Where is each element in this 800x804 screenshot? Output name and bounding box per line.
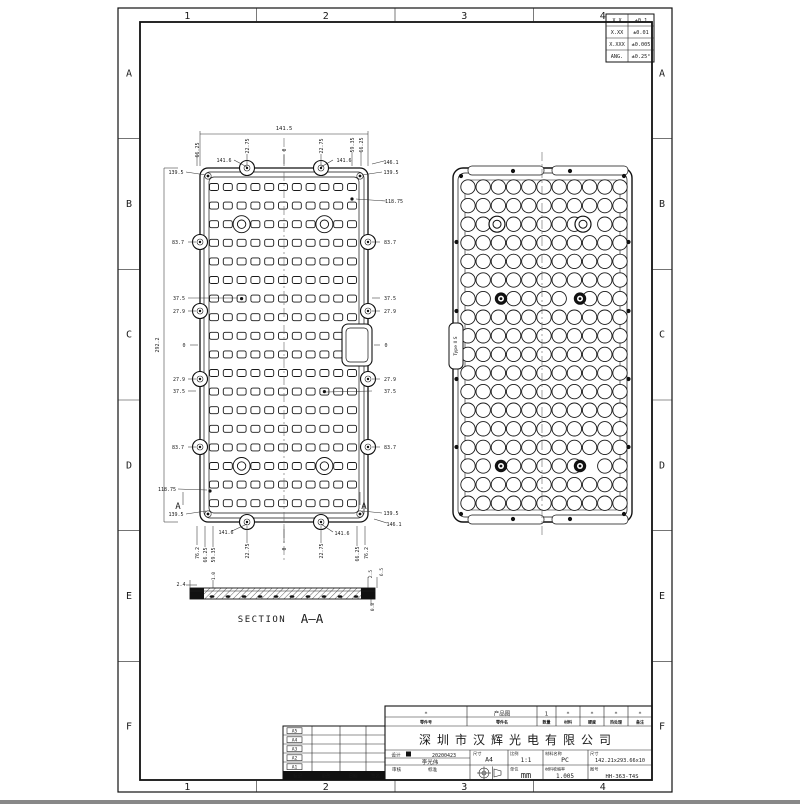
round-lens (537, 384, 551, 398)
square-lens-hole (279, 407, 288, 414)
zone-number: 1 (184, 11, 190, 22)
square-lens-hole (223, 184, 232, 191)
square-lens-hole (320, 370, 329, 377)
square-lens-hole (334, 463, 343, 470)
part-row-label: 材料 (563, 719, 572, 725)
square-lens-hole (210, 481, 219, 488)
zone-letter: B (659, 199, 665, 210)
square-lens-hole (279, 184, 288, 191)
screw-hole (493, 220, 501, 228)
dimension-label: 37.5 (173, 296, 185, 302)
square-lens-hole (251, 277, 260, 284)
round-lens (491, 422, 505, 436)
round-lens (582, 477, 596, 491)
mount-hole-dot (454, 240, 458, 244)
round-lens (506, 273, 520, 287)
square-lens-hole (292, 277, 301, 284)
round-lens (613, 459, 627, 473)
dimension-label: 0.8 (370, 603, 376, 611)
dimension-line (372, 161, 384, 164)
square-lens-hole (348, 277, 357, 284)
round-lens (506, 198, 520, 212)
square-lens-hole (223, 239, 232, 246)
square-lens-hole (265, 202, 274, 209)
round-lens (567, 440, 581, 454)
square-lens-hole (251, 388, 260, 395)
round-lens (537, 347, 551, 361)
square-lens-hole (265, 444, 274, 451)
round-lens (537, 180, 551, 194)
shrink-label: 材料收缩率 (545, 766, 565, 772)
round-lens (476, 310, 490, 324)
square-lens-hole (334, 221, 343, 228)
round-lens (476, 254, 490, 268)
square-lens-hole (210, 332, 219, 339)
mount-hole-dot (511, 517, 515, 521)
round-lens (461, 440, 475, 454)
square-lens-hole (279, 314, 288, 321)
round-lens (598, 459, 612, 473)
round-lens (598, 477, 612, 491)
tolerance-value: ±0.25° (632, 54, 651, 60)
square-lens-hole (306, 295, 315, 302)
scale-label: 比例 (510, 750, 518, 757)
dimension-label: 83.7 (384, 445, 396, 451)
square-lens-hole (223, 351, 232, 358)
dimension-label: 141.6 (334, 531, 349, 537)
part-row-label: 备注 (635, 719, 644, 725)
dimension-label: 27.9 (384, 377, 396, 383)
square-lens-hole (292, 370, 301, 377)
zone-number: 3 (461, 782, 467, 793)
design-date: 20200423 (432, 753, 456, 759)
round-lens (552, 366, 566, 380)
round-lens (552, 198, 566, 212)
mount-hole-dot (454, 377, 458, 381)
square-lens-hole (237, 370, 246, 377)
side-tab-inner (346, 328, 368, 362)
revision-header: 日期 (349, 774, 358, 780)
dimension-label: 118.75 (385, 199, 403, 205)
square-lens-hole (279, 221, 288, 228)
lens-cut-mark (354, 595, 359, 598)
square-lens-hole (292, 221, 301, 228)
round-lens (598, 198, 612, 212)
square-lens-hole (237, 239, 246, 246)
square-lens-hole (320, 239, 329, 246)
round-lens (537, 459, 551, 473)
zone-number: 4 (600, 11, 606, 22)
square-lens-hole (265, 388, 274, 395)
lens-cut-mark (274, 595, 279, 598)
dimension-label: 83.7 (172, 240, 184, 246)
square-lens-hole (237, 314, 246, 321)
square-lens-hole (348, 425, 357, 432)
square-lens-hole (210, 463, 219, 470)
round-lens (461, 291, 475, 305)
square-lens-hole (251, 221, 260, 228)
round-lens (567, 384, 581, 398)
round-lens (598, 236, 612, 250)
square-lens-hole (334, 184, 343, 191)
square-lens-hole (223, 500, 232, 507)
square-lens-hole (348, 407, 357, 414)
square-lens-hole (279, 295, 288, 302)
square-lens-hole (306, 444, 315, 451)
square-lens-hole (210, 444, 219, 451)
round-lens (613, 180, 627, 194)
round-lens (461, 459, 475, 473)
square-lens-hole (265, 258, 274, 265)
square-lens-hole (334, 277, 343, 284)
round-lens (582, 366, 596, 380)
round-lens (613, 254, 627, 268)
square-lens-hole (237, 258, 246, 265)
revision-mark: A5 (292, 729, 298, 735)
square-lens-hole (306, 500, 315, 507)
round-lens (582, 273, 596, 287)
square-lens-hole (320, 444, 329, 451)
unit-value: mm (521, 771, 531, 781)
square-lens-hole (292, 388, 301, 395)
round-lens (476, 347, 490, 361)
dimension-label: 141.6 (216, 158, 231, 164)
round-lens (522, 422, 536, 436)
round-lens (476, 273, 490, 287)
square-lens-hole (292, 258, 301, 265)
square-lens-hole (279, 370, 288, 377)
dimension-label: 6.5 (379, 568, 385, 576)
round-lens (522, 496, 536, 510)
type-tab-label: Type II S (453, 336, 459, 356)
edge-lobe-dot (320, 167, 322, 169)
square-lens-hole (210, 425, 219, 432)
square-lens-hole (279, 351, 288, 358)
round-lens (537, 366, 551, 380)
lens-cut-mark (322, 595, 327, 598)
square-lens-hole (237, 277, 246, 284)
round-lens (613, 422, 627, 436)
square-lens-hole (223, 295, 232, 302)
square-lens-hole (251, 444, 260, 451)
round-lens (491, 477, 505, 491)
edge-lobe-dot (367, 378, 369, 380)
round-lens (537, 273, 551, 287)
part-row-value: 1 (545, 712, 549, 718)
reference-dot (323, 390, 326, 393)
dimension-label: 139.5 (168, 170, 183, 176)
round-lens (537, 329, 551, 343)
mount-hole-dot (459, 174, 463, 178)
dimension-label: 37.5 (384, 296, 396, 302)
square-lens-hole (279, 500, 288, 507)
square-lens-hole (237, 444, 246, 451)
round-lens (461, 384, 475, 398)
revision-header: 标记 (293, 773, 302, 780)
round-lens (567, 496, 581, 510)
edge-lobe-dot (199, 241, 201, 243)
square-lens-hole (348, 463, 357, 470)
round-lens (552, 236, 566, 250)
round-lens (506, 254, 520, 268)
square-lens-hole (265, 425, 274, 432)
square-lens-hole (237, 184, 246, 191)
square-lens-hole (320, 295, 329, 302)
round-lens (476, 440, 490, 454)
screw-boss-hole (237, 220, 245, 228)
round-lens (598, 329, 612, 343)
round-lens (537, 496, 551, 510)
square-lens-hole (223, 407, 232, 414)
square-lens-hole (334, 370, 343, 377)
round-lens (461, 422, 475, 436)
round-lens (522, 217, 536, 231)
round-lens (613, 198, 627, 212)
square-lens-hole (265, 314, 274, 321)
dimension-label: 83.7 (172, 445, 184, 451)
round-lens (567, 236, 581, 250)
dimension-line (374, 519, 387, 523)
square-lens-hole (251, 239, 260, 246)
round-lens (567, 347, 581, 361)
square-lens-hole (279, 239, 288, 246)
round-lens (537, 217, 551, 231)
projection-symbol-icon (477, 767, 501, 780)
round-lens (598, 310, 612, 324)
square-lens-hole (210, 184, 219, 191)
round-lens (552, 291, 566, 305)
dimension-label: 66.25 (195, 142, 201, 157)
dimension-label: 0 (282, 547, 288, 550)
square-lens-hole (265, 277, 274, 284)
round-lens (537, 403, 551, 417)
round-lens (476, 422, 490, 436)
round-lens (522, 459, 536, 473)
square-lens-hole (223, 444, 232, 451)
round-lens (613, 384, 627, 398)
square-lens-hole (265, 239, 274, 246)
dimension-label: 139.5 (168, 512, 183, 518)
round-lens (522, 291, 536, 305)
round-lens (582, 254, 596, 268)
round-lens (598, 496, 612, 510)
square-lens-hole (251, 184, 260, 191)
square-lens-hole (265, 500, 274, 507)
round-lens (613, 496, 627, 510)
round-lens (613, 366, 627, 380)
round-lens (522, 403, 536, 417)
mount-hole-dot (626, 240, 630, 244)
square-lens-hole (320, 184, 329, 191)
square-lens-hole (210, 351, 219, 358)
lens-cut-mark (210, 595, 215, 598)
dimension-label: 22.75 (245, 543, 251, 558)
round-lens (537, 440, 551, 454)
round-lens (461, 180, 475, 194)
revision-mark: A4 (292, 738, 298, 744)
square-lens-hole (292, 425, 301, 432)
square-lens-hole (237, 332, 246, 339)
zone-number: 1 (184, 782, 190, 793)
square-lens-hole (334, 239, 343, 246)
round-lens (552, 310, 566, 324)
lens-cut-mark (242, 595, 247, 598)
square-lens-hole (348, 221, 357, 228)
drawing-no: HH-363-T4S (605, 774, 638, 780)
square-lens-hole (292, 202, 301, 209)
section-view: SECTION A—A (190, 588, 375, 626)
square-lens-hole (334, 481, 343, 488)
round-lens (522, 329, 536, 343)
square-lens-hole (334, 351, 343, 358)
part-row-value: * (591, 712, 594, 718)
title-block: *零件号产品图零件名1数量*材料*硬度*热处理*备注 深圳市汉辉光电有限公司 设… (385, 706, 652, 781)
square-lens-hole (292, 407, 301, 414)
dimension-label: 22.75 (319, 138, 325, 153)
round-lens (613, 310, 627, 324)
round-lens (522, 384, 536, 398)
dimension-label: 27.9 (384, 309, 396, 315)
round-lens (461, 366, 475, 380)
square-lens-hole (223, 388, 232, 395)
part-row-value: 产品图 (494, 710, 511, 718)
round-lens (491, 254, 505, 268)
round-lens (552, 422, 566, 436)
round-lens (552, 459, 566, 473)
square-lens-hole (223, 481, 232, 488)
square-lens-hole (237, 407, 246, 414)
square-lens-hole (223, 258, 232, 265)
screw-boss-hole (320, 220, 328, 228)
round-lens (552, 329, 566, 343)
square-lens-hole (251, 258, 260, 265)
design-label: 设计 (391, 752, 401, 759)
square-lens-hole (279, 425, 288, 432)
dimension-label: 83.7 (384, 240, 396, 246)
corner-hole-dot (359, 175, 362, 178)
round-lens (506, 347, 520, 361)
round-lens (461, 217, 475, 231)
zone-number: 2 (323, 782, 329, 793)
square-lens-hole (237, 500, 246, 507)
revision-header: 签名 (371, 773, 380, 780)
square-lens-hole (348, 444, 357, 451)
square-lens-hole (334, 407, 343, 414)
round-lens (461, 273, 475, 287)
shrink-value: 1.005 (556, 773, 574, 780)
square-lens-hole (306, 370, 315, 377)
back-view: Type II S (449, 152, 632, 538)
round-lens (522, 273, 536, 287)
square-lens-hole (292, 500, 301, 507)
part-row-label: 数量 (542, 719, 551, 725)
edge-lobe-dot (367, 310, 369, 312)
round-lens (491, 347, 505, 361)
dimension-label: 37.5 (173, 389, 185, 395)
round-lens (476, 217, 490, 231)
round-lens (506, 477, 520, 491)
square-lens-hole (306, 332, 315, 339)
mount-hole-dot (622, 174, 626, 178)
edge-lobe-dot (367, 241, 369, 243)
lens-cut-mark (258, 595, 263, 598)
mount-hole-dot (459, 512, 463, 516)
square-lens-hole (279, 444, 288, 451)
reference-dot (350, 197, 353, 200)
section-label-prefix: SECTION (238, 615, 286, 625)
square-lens-hole (348, 370, 357, 377)
round-lens (476, 180, 490, 194)
round-lens (552, 384, 566, 398)
screw-head-dot (500, 297, 503, 300)
square-lens-hole (334, 295, 343, 302)
mount-hole-dot (626, 377, 630, 381)
dimension-label: 2.4 (176, 582, 185, 588)
tolerance-key: X.XX (611, 30, 624, 36)
round-lens (522, 477, 536, 491)
round-lens (476, 366, 490, 380)
round-lens (506, 440, 520, 454)
revision-header: 更改 (322, 773, 331, 780)
square-lens-hole (210, 221, 219, 228)
square-lens-hole (334, 425, 343, 432)
drawing-no-label: 图号 (590, 767, 598, 773)
edge-lobe-dot (367, 446, 369, 448)
round-lens (476, 384, 490, 398)
section-bar (190, 588, 375, 599)
square-lens-hole (334, 500, 343, 507)
zone-letter: F (659, 722, 665, 733)
company-name: 深圳市汉辉光电有限公司 (419, 732, 617, 747)
lens-cut-mark (290, 595, 295, 598)
edge-lobe-dot (199, 446, 201, 448)
corner-hole-dot (207, 513, 210, 516)
square-lens-hole (348, 184, 357, 191)
square-lens-hole (210, 407, 219, 414)
square-lens-hole (237, 351, 246, 358)
square-lens-hole (306, 407, 315, 414)
round-lens (598, 291, 612, 305)
dimension-label: 76.2 (195, 547, 201, 559)
square-lens-hole (292, 332, 301, 339)
screw-head-dot (579, 465, 582, 468)
part-row-value: * (639, 712, 642, 718)
square-lens-hole (251, 351, 260, 358)
round-lens (552, 217, 566, 231)
round-lens (476, 291, 490, 305)
square-lens-hole (334, 444, 343, 451)
section-cut-letter: A (175, 502, 181, 512)
tolerance-key: X.X (612, 18, 622, 24)
round-lens (613, 477, 627, 491)
square-lens-hole (348, 295, 357, 302)
dimension-label: 141.6 (218, 530, 233, 536)
dimension-label: 292.2 (155, 337, 161, 352)
part-row-value: * (615, 712, 618, 718)
round-lens (491, 198, 505, 212)
round-lens (506, 310, 520, 324)
round-lens (506, 217, 520, 231)
round-lens (582, 347, 596, 361)
front-view (193, 138, 376, 560)
dimension-label: 22.75 (319, 543, 325, 558)
round-lens (461, 310, 475, 324)
round-lens (582, 329, 596, 343)
square-lens-hole (265, 351, 274, 358)
round-lens (598, 440, 612, 454)
square-lens-hole (210, 202, 219, 209)
dimension-label: 2.5 (368, 570, 374, 578)
